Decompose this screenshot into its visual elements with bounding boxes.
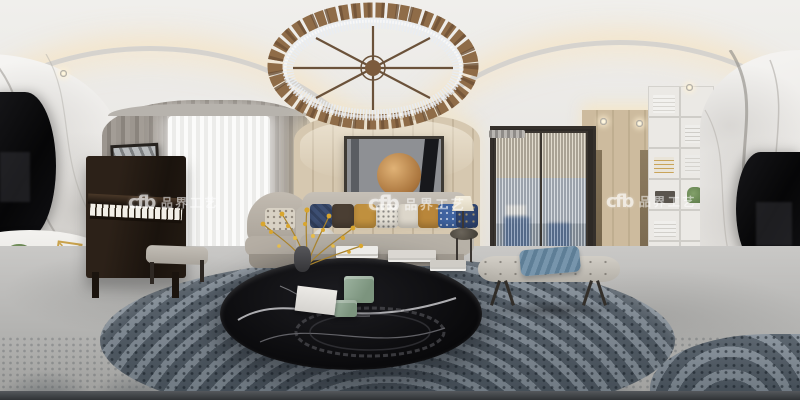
- white-board-book: [295, 286, 338, 316]
- recessed-spotlight: [636, 120, 643, 127]
- book-stack: [653, 95, 675, 113]
- daybed-leg: [596, 280, 607, 306]
- bedroom-pillow-hint: [506, 205, 526, 215]
- dark-box: [655, 191, 675, 203]
- nadir-dark-band: [0, 391, 800, 400]
- book-stack: [654, 221, 676, 237]
- ceiling-air-vent: [489, 130, 525, 138]
- bench-leg: [150, 262, 154, 284]
- tray: [430, 260, 466, 267]
- recessed-spotlight: [686, 84, 693, 91]
- daybed-leg: [582, 280, 593, 306]
- daybed-leg: [504, 280, 515, 306]
- piano-leg: [172, 272, 179, 298]
- blue-blanket: [519, 245, 581, 276]
- piano-leg: [92, 272, 99, 298]
- tv-reflection: [0, 152, 30, 202]
- flower-vase: [294, 246, 311, 272]
- recessed-spotlight: [60, 70, 67, 77]
- piano-bench: [146, 245, 209, 265]
- tv-reflection: [756, 202, 792, 246]
- book-stack: [654, 157, 674, 173]
- white-book-stack: [388, 250, 436, 258]
- bench-leg: [200, 260, 204, 282]
- yellow-flower-branches: [255, 206, 367, 268]
- panorama-living-room-render: cfb 品界工艺 cfb 品界工艺 cfb 品界工艺: [0, 0, 800, 400]
- chandelier: [266, 2, 480, 134]
- green-box-large: [344, 276, 374, 303]
- green-box-small: [334, 300, 357, 317]
- recessed-spotlight: [600, 118, 607, 125]
